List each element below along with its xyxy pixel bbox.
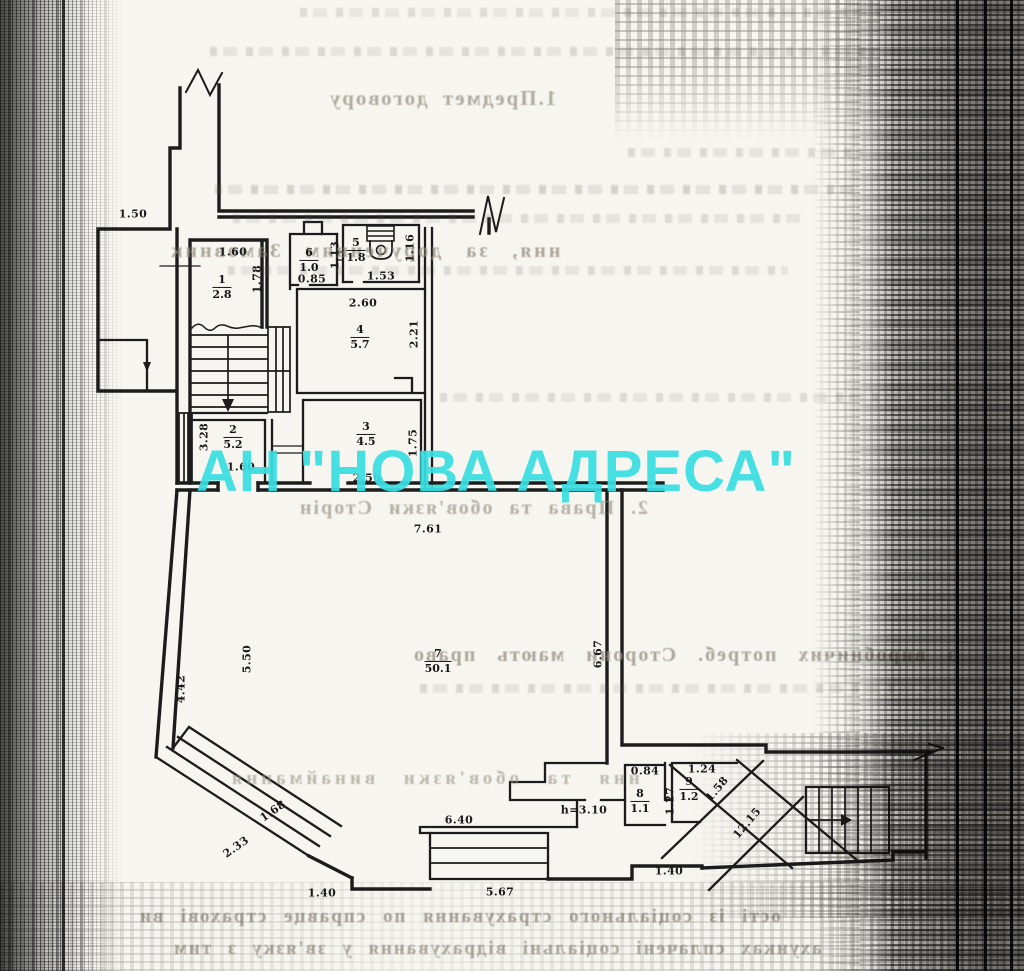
room-label: 81.1: [630, 788, 649, 814]
dimension-label: 1.40: [655, 865, 683, 878]
dimension-label: 0.85: [298, 273, 326, 286]
dimension-label: 1.78: [251, 265, 264, 293]
dimension-label: 5.67: [486, 886, 514, 899]
room-label: 91.2: [679, 776, 698, 802]
bleedthrough-text: ахунках сплачені соціальні відрахування …: [172, 938, 822, 960]
dimension-label: 5.50: [241, 645, 254, 673]
agency-watermark: АН "НОВА АДРЕСА": [196, 438, 796, 505]
dimension-label: 1.50: [119, 208, 147, 221]
dimension-label: 6.67: [592, 640, 605, 668]
faint-text-row: [210, 47, 875, 56]
bleedthrough-text: з виробничих потреб. Сторони мають право: [412, 644, 956, 667]
dimension-label: 1.27: [664, 787, 677, 815]
dimension-label: h=3.10: [561, 804, 607, 817]
dimension-label: 2.60: [349, 297, 377, 310]
faint-text-row: [215, 185, 860, 194]
dimension-label: 6.40: [445, 814, 473, 827]
bleedthrough-text: ння та обов'язки винаймання: [228, 768, 640, 790]
room-label: 61.0: [299, 247, 318, 273]
dimension-label: 7.61: [414, 523, 442, 536]
faint-text-row: [233, 214, 803, 223]
dimension-label: 4.42: [175, 675, 188, 703]
dimension-label: 1.40: [308, 887, 336, 900]
dimension-label: 1.60: [219, 246, 247, 259]
room-label: 750.1: [425, 648, 452, 674]
scanned-floor-plan-page: 1.Предмет договоруння, за дорученням Зам…: [0, 0, 1024, 971]
room-label: 51.8: [346, 237, 365, 263]
room-label: 12.8: [212, 274, 231, 300]
dimension-label: 1.13: [329, 241, 342, 269]
dimension-label: 1.24: [688, 763, 716, 776]
dimension-label: 1.16: [404, 234, 417, 262]
dimension-label: 1.53: [367, 270, 395, 283]
bleedthrough-text: 1.Предмет договору: [328, 86, 556, 111]
dimension-label: 0.84: [631, 765, 659, 778]
faint-text-row: [300, 8, 890, 17]
faint-text-row: [440, 393, 1000, 402]
faint-text-row: [628, 148, 863, 157]
dimension-label: 2.21: [408, 320, 421, 348]
faint-text-row: [420, 684, 1010, 693]
room-label: 45.7: [350, 324, 369, 350]
bleedthrough-text: ості із соціального страхування по справ…: [138, 906, 781, 928]
